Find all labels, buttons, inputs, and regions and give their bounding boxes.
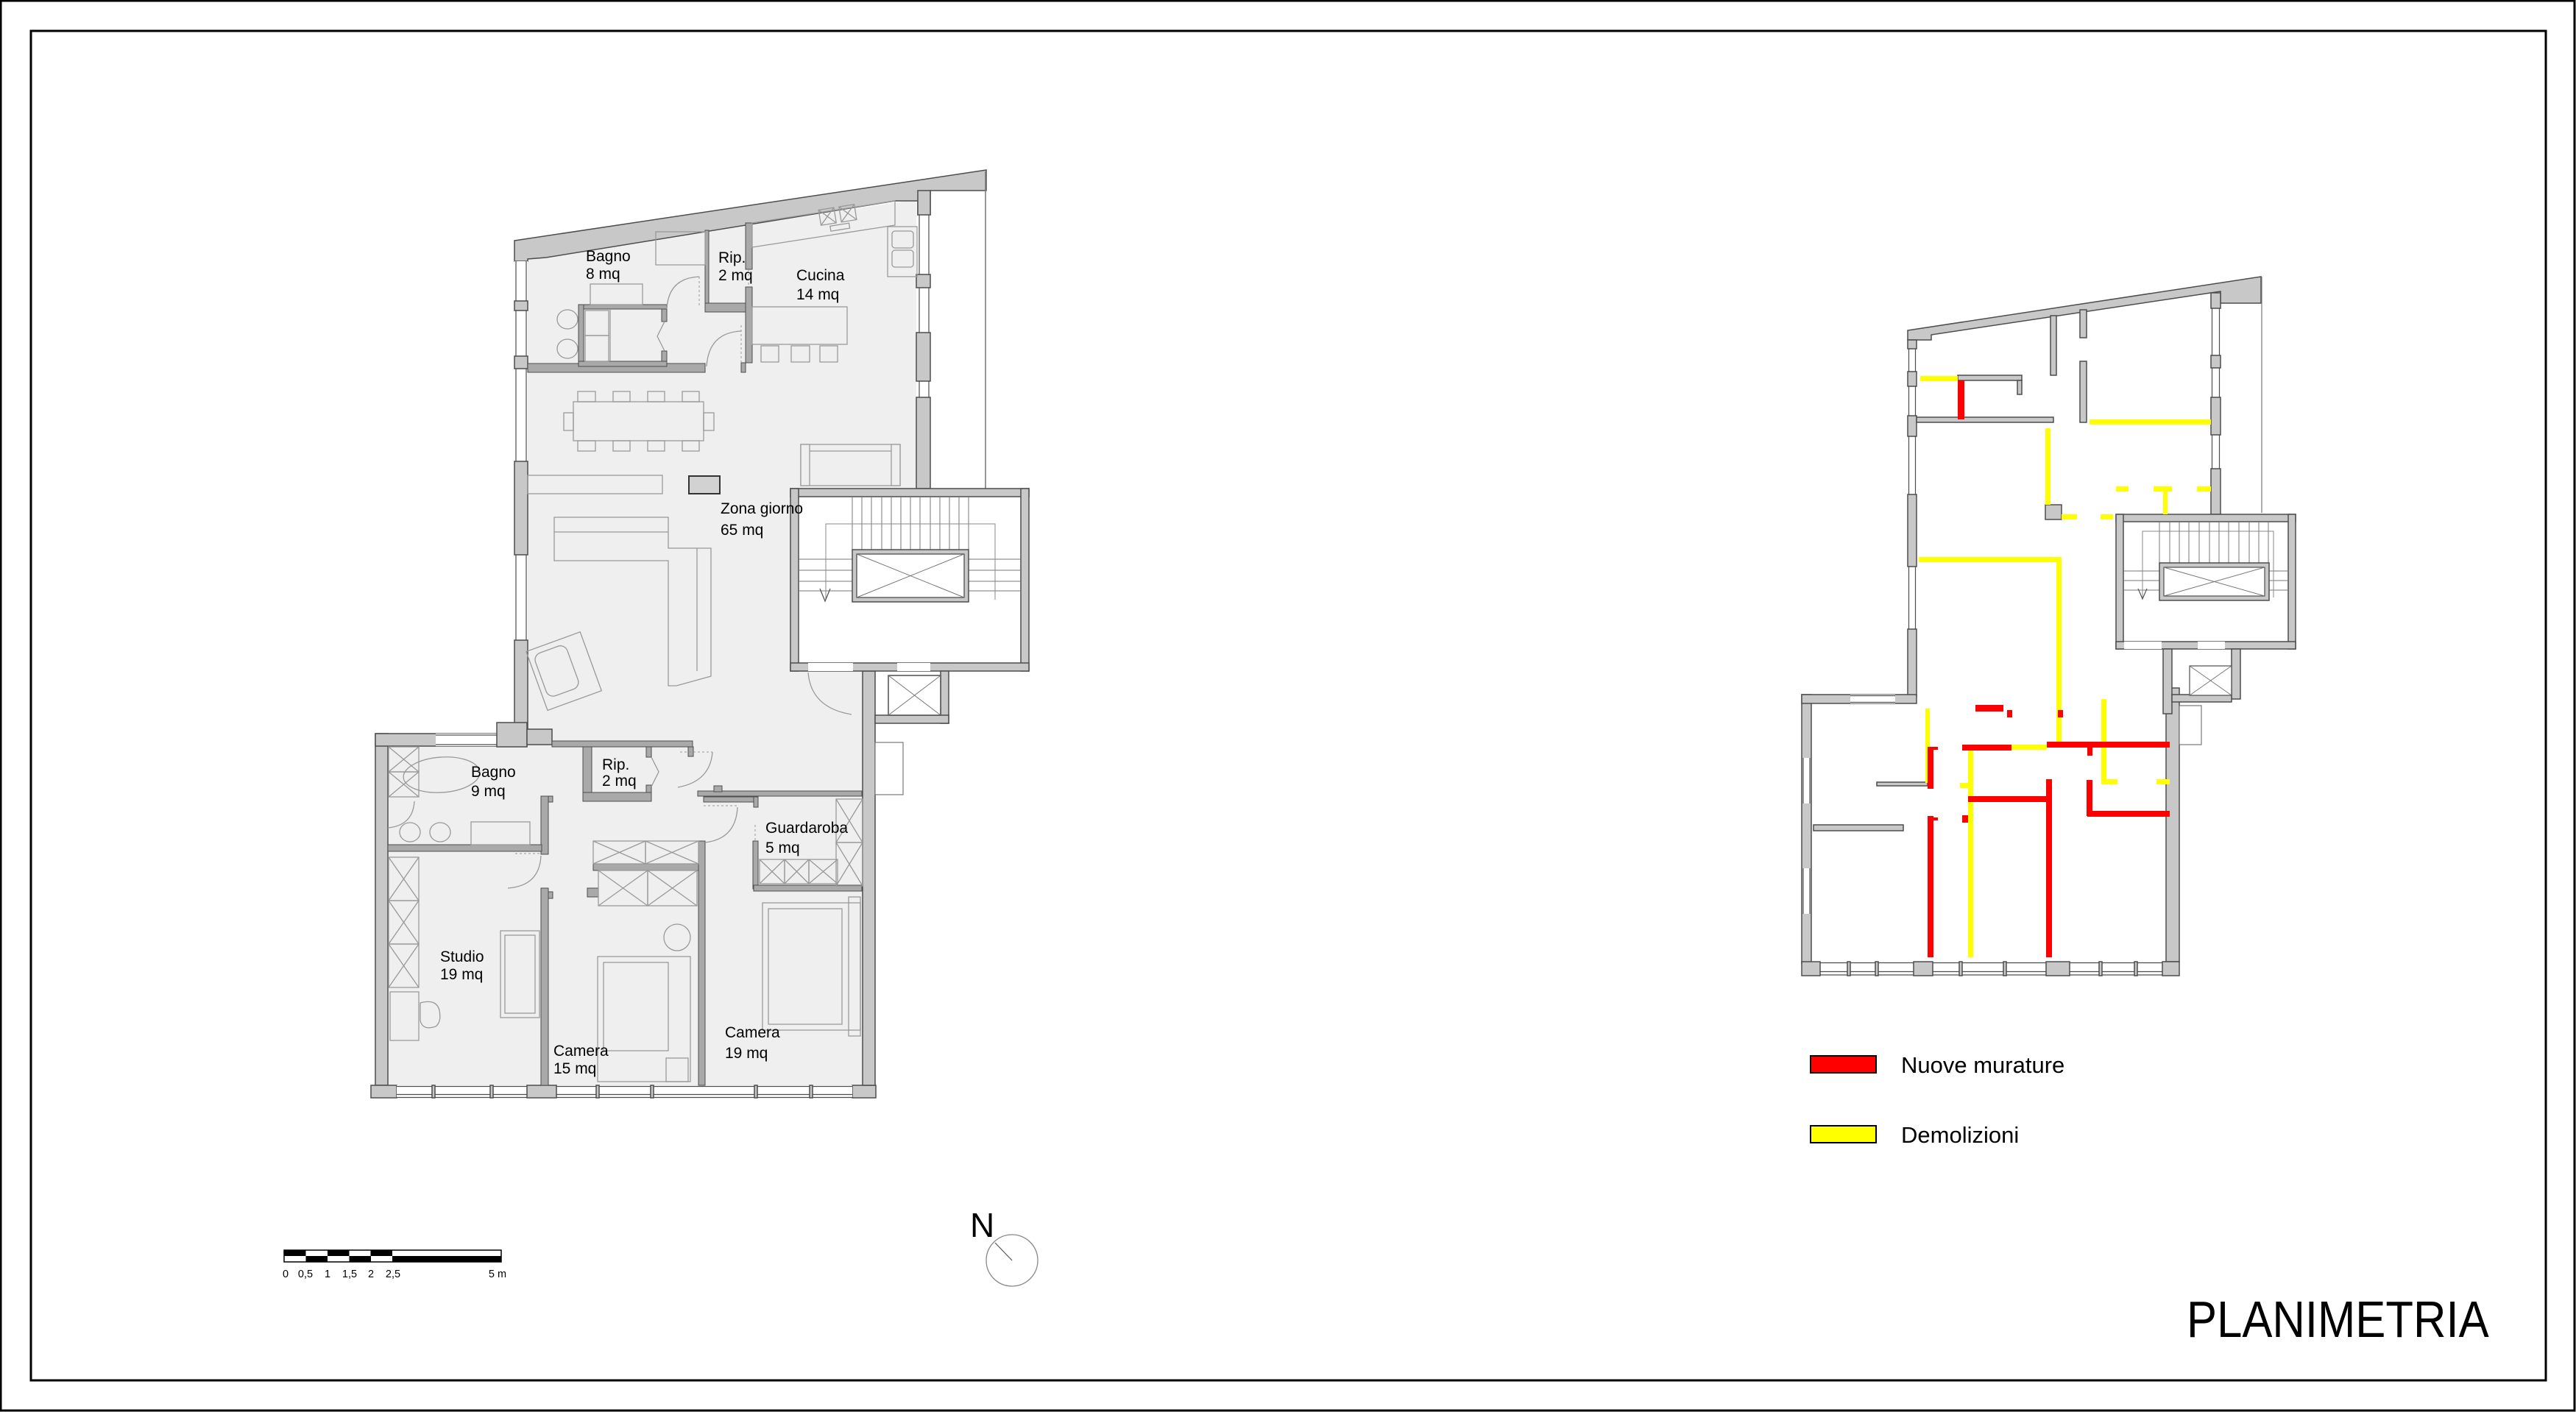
svg-text:Rip.: Rip.: [718, 249, 746, 266]
svg-text:19 mq: 19 mq: [725, 1045, 768, 1062]
svg-text:Rip.: Rip.: [602, 756, 629, 773]
svg-text:1,5: 1,5: [342, 1269, 357, 1280]
svg-text:14 mq: 14 mq: [796, 286, 839, 303]
svg-text:Camera: Camera: [553, 1043, 609, 1060]
svg-text:5 mq: 5 mq: [765, 840, 800, 856]
svg-text:2: 2: [368, 1269, 374, 1280]
svg-text:2 mq: 2 mq: [718, 267, 753, 284]
svg-text:8 mq: 8 mq: [586, 266, 620, 283]
svg-text:Cucina: Cucina: [796, 267, 845, 284]
svg-text:Nuove murature: Nuove murature: [1901, 1052, 2064, 1078]
svg-text:Camera: Camera: [725, 1024, 780, 1041]
svg-text:5 m: 5 m: [489, 1269, 506, 1280]
svg-text:19 mq: 19 mq: [440, 966, 483, 983]
svg-text:Demolizioni: Demolizioni: [1901, 1122, 2019, 1148]
svg-text:Bagno: Bagno: [471, 764, 516, 781]
svg-text:Studio: Studio: [440, 948, 484, 965]
svg-text:0: 0: [283, 1269, 289, 1280]
svg-text:2,5: 2,5: [386, 1269, 400, 1280]
svg-text:15 mq: 15 mq: [553, 1060, 596, 1077]
svg-text:N: N: [970, 1206, 994, 1244]
svg-text:Bagno: Bagno: [586, 248, 631, 265]
svg-text:0,5: 0,5: [298, 1269, 313, 1280]
svg-text:Zona giorno: Zona giorno: [721, 500, 803, 517]
svg-text:65 mq: 65 mq: [721, 522, 763, 539]
svg-text:Guardaroba: Guardaroba: [765, 820, 848, 837]
svg-text:1: 1: [325, 1269, 330, 1280]
svg-text:PLANIMETRIA: PLANIMETRIA: [2187, 1290, 2489, 1348]
svg-text:2 mq: 2 mq: [602, 773, 637, 790]
svg-text:9 mq: 9 mq: [471, 783, 506, 800]
